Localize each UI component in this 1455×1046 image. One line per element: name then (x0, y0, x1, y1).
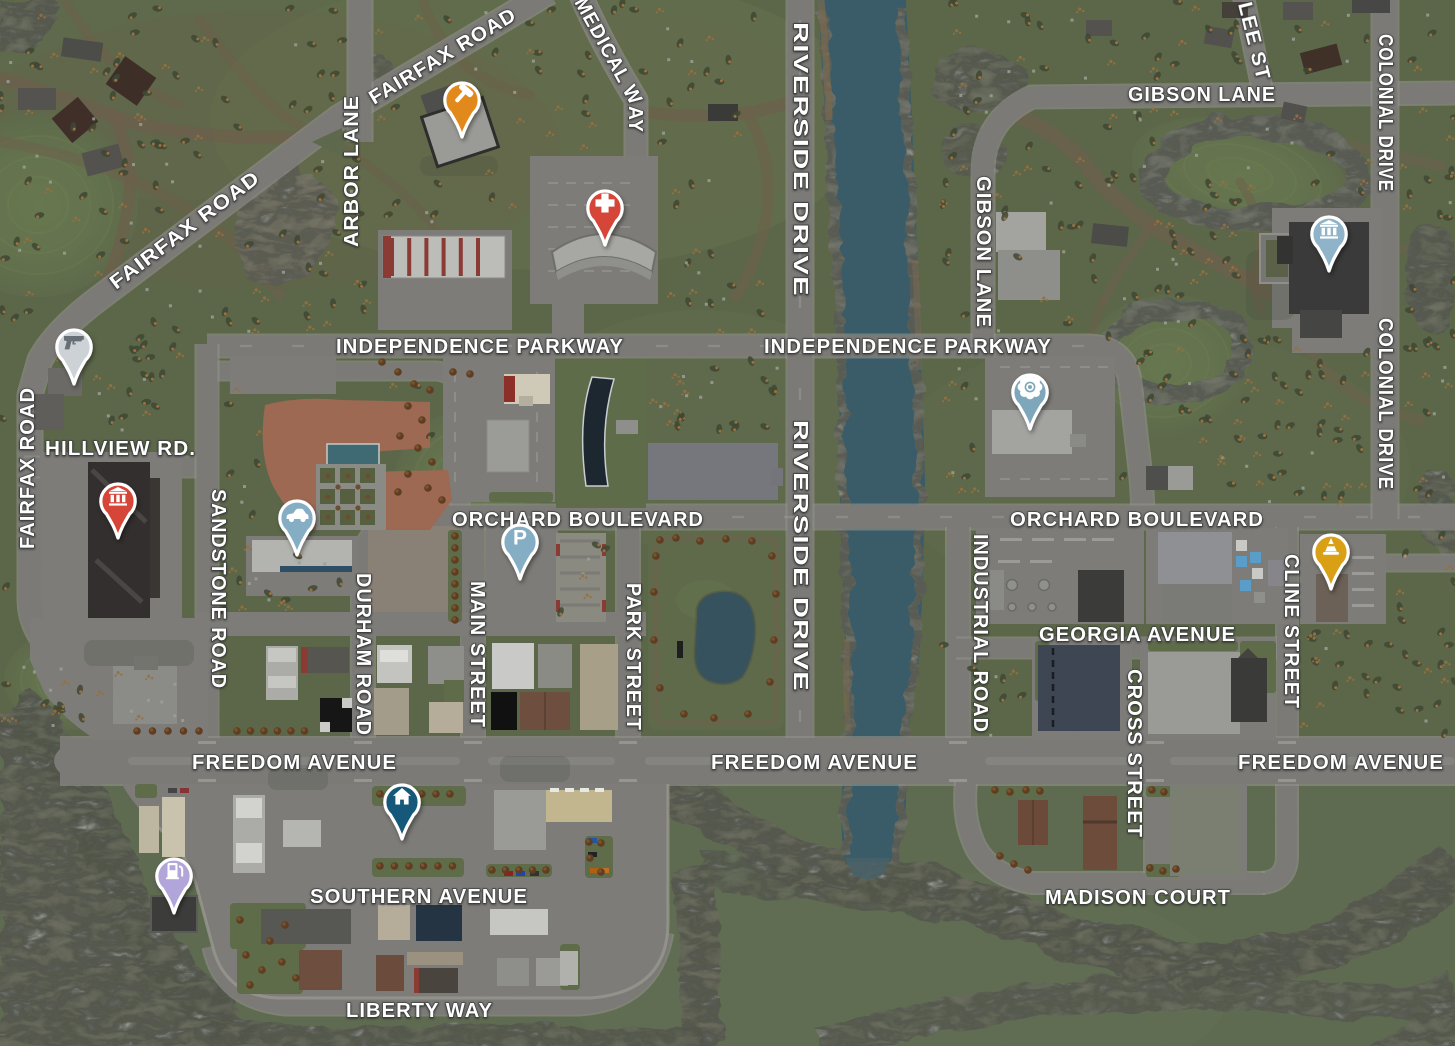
svg-text:GIBSON LANE: GIBSON LANE (1128, 84, 1276, 106)
svg-text:PARK STREET: PARK STREET (622, 583, 644, 731)
svg-text:RIVERSIDE DRIVE: RIVERSIDE DRIVE (789, 420, 811, 692)
svg-text:ORCHARD BOULEVARD: ORCHARD BOULEVARD (452, 509, 704, 531)
svg-text:DURHAM ROAD: DURHAM ROAD (352, 573, 374, 736)
svg-text:SANDSTONE ROAD: SANDSTONE ROAD (207, 489, 229, 689)
svg-text:HILLVIEW RD.: HILLVIEW RD. (45, 438, 196, 460)
svg-text:INDEPENDENCE PARKWAY: INDEPENDENCE PARKWAY (336, 336, 624, 358)
svg-text:CLINE STREET: CLINE STREET (1280, 554, 1302, 709)
svg-text:FAIRFAX ROAD: FAIRFAX ROAD (17, 387, 39, 549)
svg-text:INDUSTRIAL ROAD: INDUSTRIAL ROAD (969, 534, 991, 733)
svg-text:LIBERTY WAY: LIBERTY WAY (346, 1000, 493, 1022)
svg-text:RIVERSIDE DRIVE: RIVERSIDE DRIVE (789, 22, 811, 297)
svg-text:SOUTHERN AVENUE: SOUTHERN AVENUE (310, 886, 528, 908)
svg-text:CROSS STREET: CROSS STREET (1123, 669, 1145, 838)
svg-text:ORCHARD BOULEVARD: ORCHARD BOULEVARD (1010, 509, 1264, 531)
svg-text:COLONIAL DRIVE: COLONIAL DRIVE (1374, 318, 1396, 490)
svg-text:FREEDOM AVENUE: FREEDOM AVENUE (711, 752, 918, 774)
svg-text:GIBSON LANE: GIBSON LANE (972, 176, 994, 328)
svg-text:COLONIAL DRIVE: COLONIAL DRIVE (1374, 34, 1396, 192)
svg-text:FREEDOM AVENUE: FREEDOM AVENUE (1238, 752, 1444, 774)
svg-text:INDEPENDENCE PARKWAY: INDEPENDENCE PARKWAY (764, 336, 1052, 358)
svg-text:MADISON COURT: MADISON COURT (1045, 887, 1231, 909)
svg-text:GEORGIA AVENUE: GEORGIA AVENUE (1039, 624, 1236, 646)
svg-text:MAIN STREET: MAIN STREET (466, 581, 488, 728)
svg-text:FREEDOM AVENUE: FREEDOM AVENUE (192, 752, 397, 774)
svg-text:ARBOR LANE: ARBOR LANE (341, 95, 363, 247)
svg-text:P: P (513, 527, 527, 550)
